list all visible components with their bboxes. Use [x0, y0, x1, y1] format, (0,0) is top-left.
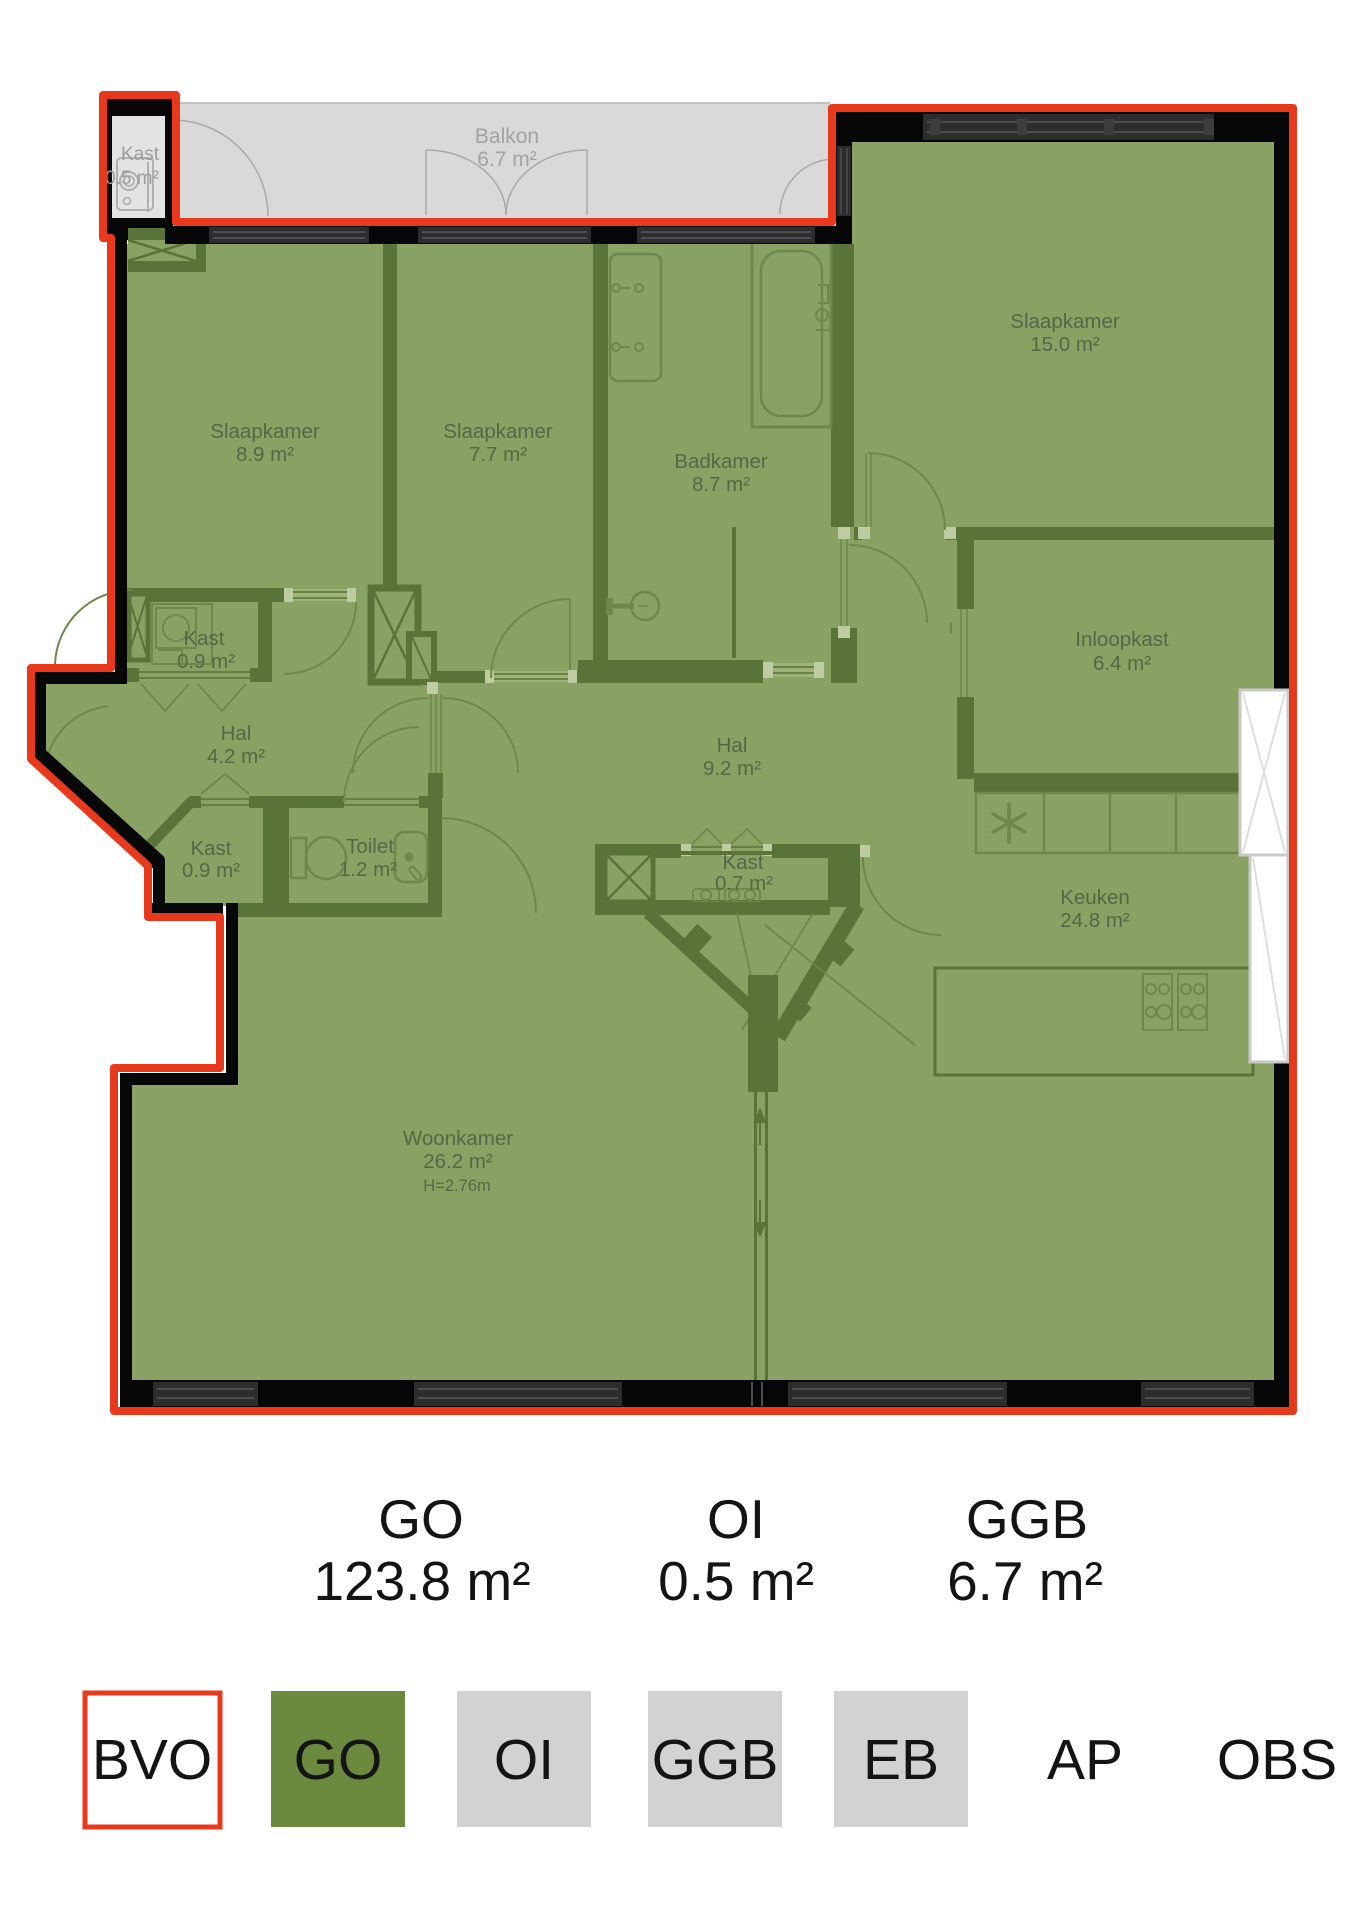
svg-text:GO: GO — [378, 1488, 464, 1550]
svg-text:Woonkamer: Woonkamer — [403, 1127, 513, 1150]
svg-text:6.7 m²: 6.7 m² — [947, 1550, 1103, 1612]
svg-text:9.2 m²: 9.2 m² — [703, 757, 761, 780]
svg-text:0.7 m²: 0.7 m² — [715, 872, 773, 895]
svg-text:OI: OI — [707, 1488, 765, 1550]
svg-text:Hal: Hal — [221, 722, 252, 745]
svg-text:H=2.76m: H=2.76m — [423, 1177, 490, 1195]
svg-text:EB: EB — [863, 1728, 939, 1792]
svg-text:Hal: Hal — [717, 734, 748, 757]
svg-text:24.8 m²: 24.8 m² — [1060, 909, 1130, 932]
svg-text:26.2 m²: 26.2 m² — [423, 1150, 493, 1173]
svg-text:Balkon: Balkon — [475, 125, 539, 148]
svg-text:0.9 m²: 0.9 m² — [182, 859, 240, 882]
svg-text:Slaapkamer: Slaapkamer — [1010, 310, 1120, 333]
svg-text:GGB: GGB — [652, 1728, 779, 1792]
svg-text:7.7 m²: 7.7 m² — [469, 443, 527, 466]
svg-text:15.0 m²: 15.0 m² — [1030, 333, 1100, 356]
svg-text:Toilet: Toilet — [346, 835, 394, 858]
svg-text:8.7 m²: 8.7 m² — [692, 473, 750, 496]
svg-text:1.2 m²: 1.2 m² — [339, 858, 397, 881]
svg-text:6.4 m²: 6.4 m² — [1093, 652, 1151, 675]
svg-text:Slaapkamer: Slaapkamer — [210, 420, 320, 443]
svg-text:0.9 m²: 0.9 m² — [177, 650, 235, 673]
svg-text:Inloopkast: Inloopkast — [1075, 628, 1169, 651]
svg-text:Keuken: Keuken — [1060, 886, 1130, 909]
svg-text:Slaapkamer: Slaapkamer — [443, 420, 553, 443]
svg-text:Kast: Kast — [183, 627, 224, 650]
svg-text:4.2 m²: 4.2 m² — [207, 745, 265, 768]
svg-text:Badkamer: Badkamer — [674, 450, 768, 473]
svg-text:0.5 m²: 0.5 m² — [658, 1550, 814, 1612]
svg-text:GO: GO — [294, 1728, 383, 1792]
svg-text:8.9 m²: 8.9 m² — [236, 443, 294, 466]
svg-text:Kast: Kast — [190, 837, 231, 860]
svg-text:OI: OI — [494, 1728, 554, 1792]
svg-text:Kast: Kast — [121, 144, 160, 165]
svg-text:AP: AP — [1047, 1728, 1123, 1792]
svg-text:GGB: GGB — [966, 1488, 1088, 1550]
svg-text:0.5 m²: 0.5 m² — [105, 168, 159, 189]
svg-text:123.8 m²: 123.8 m² — [313, 1550, 530, 1612]
svg-text:6.7 m²: 6.7 m² — [477, 148, 537, 171]
svg-text:OBS: OBS — [1217, 1728, 1337, 1792]
svg-text:BVO: BVO — [92, 1728, 212, 1792]
svg-text:Kast: Kast — [722, 851, 763, 874]
